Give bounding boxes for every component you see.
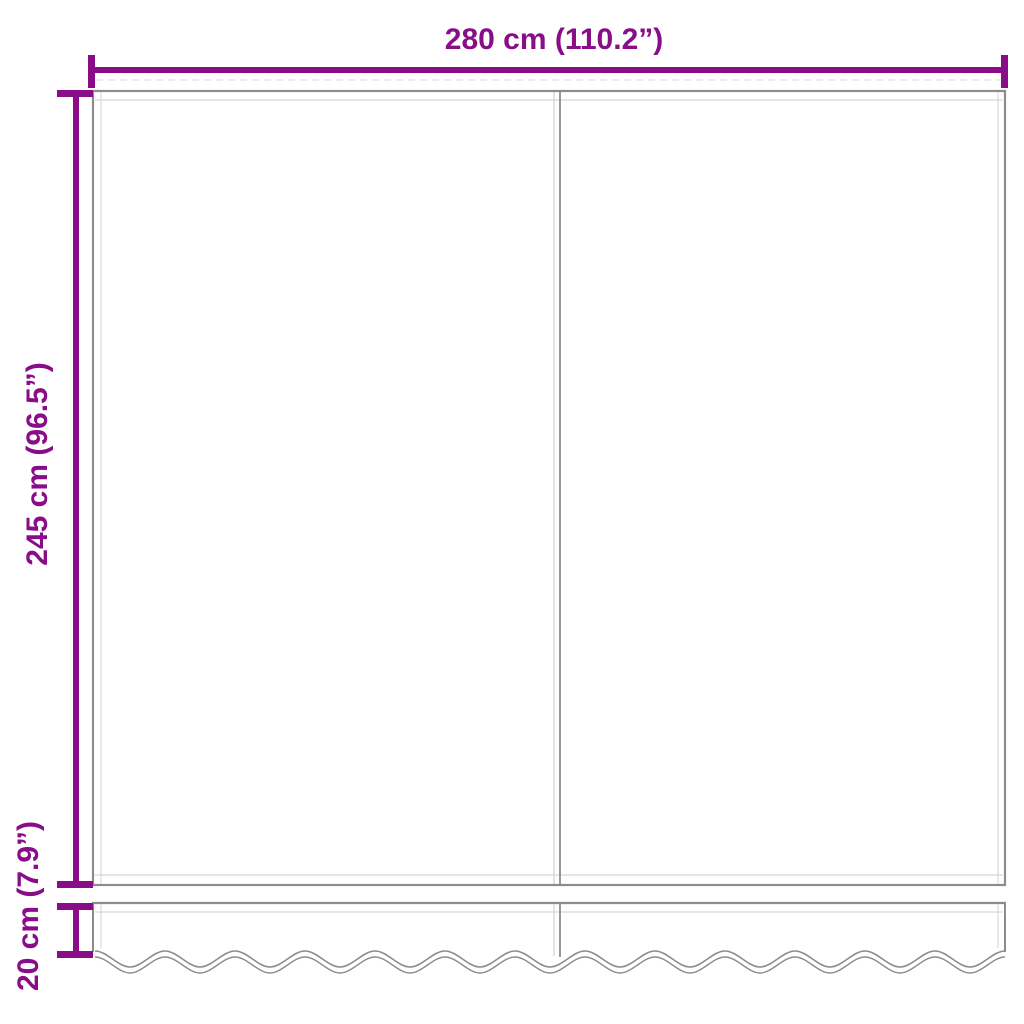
height-dimension-tick-bottom — [57, 881, 93, 888]
height-dimension-tick-top — [57, 90, 93, 97]
valance-wave-outer — [95, 951, 1005, 967]
valance-wave-inner — [95, 957, 1005, 973]
valance-dimension-tick-bottom — [57, 951, 93, 958]
valance-dimension-label: 20 cm (7.9”) — [14, 821, 44, 991]
height-dimension-line — [73, 93, 79, 884]
width-dimension-line — [91, 67, 1005, 73]
valance-dimension-line — [73, 906, 79, 954]
width-dimension-tick-left — [88, 55, 95, 88]
dimension-diagram: 280 cm (110.2”) 245 cm (96.5”) 20 cm (7.… — [0, 0, 1024, 1024]
main-fabric-panel — [93, 91, 1005, 885]
width-dimension-tick-right — [1001, 55, 1008, 88]
height-dimension-label: 245 cm (96.5”) — [23, 362, 53, 565]
main-panel-outline — [93, 91, 1005, 885]
valance-panel — [92, 902, 1006, 973]
width-dimension-label: 280 cm (110.2”) — [445, 25, 663, 55]
awning-fabric-drawing — [0, 0, 1024, 1024]
valance-dimension-tick-top — [57, 903, 93, 910]
